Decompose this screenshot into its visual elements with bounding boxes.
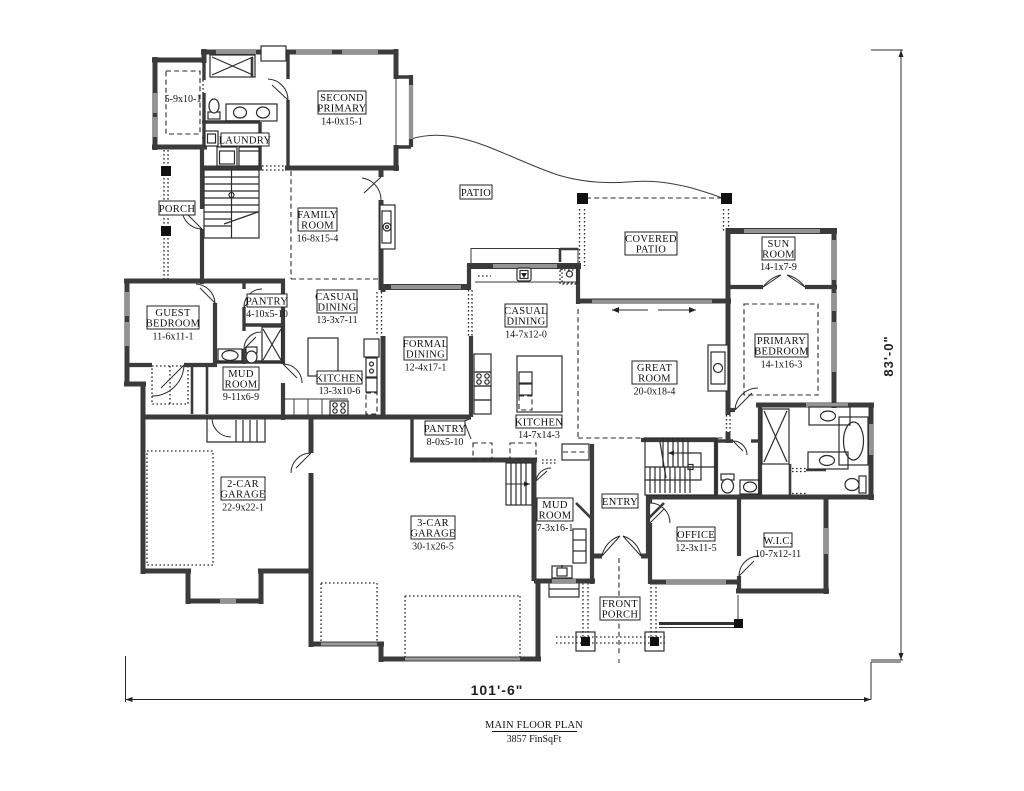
svg-text:13-3x10-6: 13-3x10-6: [319, 386, 361, 397]
svg-text:13-3x7-11: 13-3x7-11: [316, 315, 357, 326]
svg-text:FAMILY: FAMILY: [297, 210, 337, 221]
svg-text:10-7x12-11: 10-7x12-11: [755, 549, 801, 560]
svg-text:16-8x15-4: 16-8x15-4: [297, 234, 339, 245]
svg-text:3-CAR: 3-CAR: [417, 518, 449, 529]
svg-text:CASUAL: CASUAL: [315, 292, 359, 303]
svg-text:ENTRY: ENTRY: [602, 497, 638, 508]
svg-text:5-9x10-1: 5-9x10-1: [165, 94, 202, 105]
svg-text:BEDROOM: BEDROOM: [146, 319, 201, 330]
svg-text:PRIMARY: PRIMARY: [757, 336, 806, 347]
svg-text:OFFICE: OFFICE: [677, 530, 715, 541]
svg-text:9-11x6-9: 9-11x6-9: [223, 392, 259, 403]
svg-text:PANTRY: PANTRY: [246, 297, 288, 308]
svg-text:7-3x16-1: 7-3x16-1: [537, 523, 574, 534]
svg-text:PATIO: PATIO: [636, 245, 666, 256]
svg-text:DINING: DINING: [317, 303, 356, 314]
svg-text:CASUAL: CASUAL: [504, 306, 548, 317]
svg-text:SECOND: SECOND: [320, 93, 364, 104]
svg-text:ROOM: ROOM: [225, 380, 258, 391]
svg-text:SUN: SUN: [768, 239, 790, 250]
svg-text:MUD: MUD: [228, 369, 254, 380]
svg-text:MUD: MUD: [542, 500, 568, 511]
svg-text:LAUNDRY: LAUNDRY: [219, 136, 272, 147]
svg-text:ROOM: ROOM: [762, 250, 795, 261]
svg-text:FORMAL: FORMAL: [403, 339, 449, 350]
svg-text:14-7x12-0: 14-7x12-0: [505, 330, 547, 341]
svg-text:14-0x15-1: 14-0x15-1: [321, 117, 363, 128]
svg-text:ROOM: ROOM: [301, 221, 334, 232]
svg-text:14-1x7-9: 14-1x7-9: [760, 262, 797, 273]
svg-text:BEDROOM: BEDROOM: [754, 347, 809, 358]
svg-text:101'-6": 101'-6": [471, 682, 524, 698]
svg-text:KITCHEN: KITCHEN: [515, 418, 563, 429]
svg-text:2-CAR: 2-CAR: [227, 479, 259, 490]
svg-text:MAIN FLOOR PLAN: MAIN FLOOR PLAN: [485, 720, 583, 731]
svg-text:GUEST: GUEST: [155, 308, 191, 319]
svg-text:12-3x11-5: 12-3x11-5: [675, 543, 716, 554]
svg-text:GARAGE: GARAGE: [220, 490, 266, 501]
svg-text:14-7x14-3: 14-7x14-3: [518, 430, 560, 441]
svg-text:22-9x22-1: 22-9x22-1: [222, 503, 264, 514]
svg-text:83'-0": 83'-0": [881, 335, 896, 376]
svg-text:ROOM: ROOM: [638, 374, 671, 385]
svg-text:KITCHEN: KITCHEN: [315, 374, 363, 385]
svg-text:8-0x5-10: 8-0x5-10: [427, 437, 464, 448]
svg-text:ROOM: ROOM: [539, 511, 572, 522]
svg-text:PANTRY: PANTRY: [424, 424, 466, 435]
svg-text:PORCH: PORCH: [159, 204, 196, 215]
svg-text:PRIMARY: PRIMARY: [317, 104, 366, 115]
svg-text:W.I.C.: W.I.C.: [763, 536, 792, 547]
svg-text:FRONT: FRONT: [602, 599, 638, 610]
svg-text:GREAT: GREAT: [637, 363, 673, 374]
svg-text:14-1x16-3: 14-1x16-3: [761, 360, 803, 371]
svg-text:GARAGE: GARAGE: [410, 529, 456, 540]
svg-text:COVERED: COVERED: [625, 234, 677, 245]
svg-text:20-0x18-4: 20-0x18-4: [634, 387, 676, 398]
svg-text:PATIO: PATIO: [461, 188, 491, 199]
svg-text:PORCH: PORCH: [602, 610, 639, 621]
svg-text:3857 FinSqFt: 3857 FinSqFt: [507, 734, 562, 745]
svg-text:30-1x26-5: 30-1x26-5: [412, 542, 454, 553]
svg-text:DINING: DINING: [406, 350, 445, 361]
svg-text:12-4x17-1: 12-4x17-1: [405, 363, 447, 374]
svg-text:11-6x11-1: 11-6x11-1: [153, 332, 194, 343]
svg-text:4-10x5-10: 4-10x5-10: [246, 309, 288, 320]
svg-text:DINING: DINING: [506, 317, 545, 328]
